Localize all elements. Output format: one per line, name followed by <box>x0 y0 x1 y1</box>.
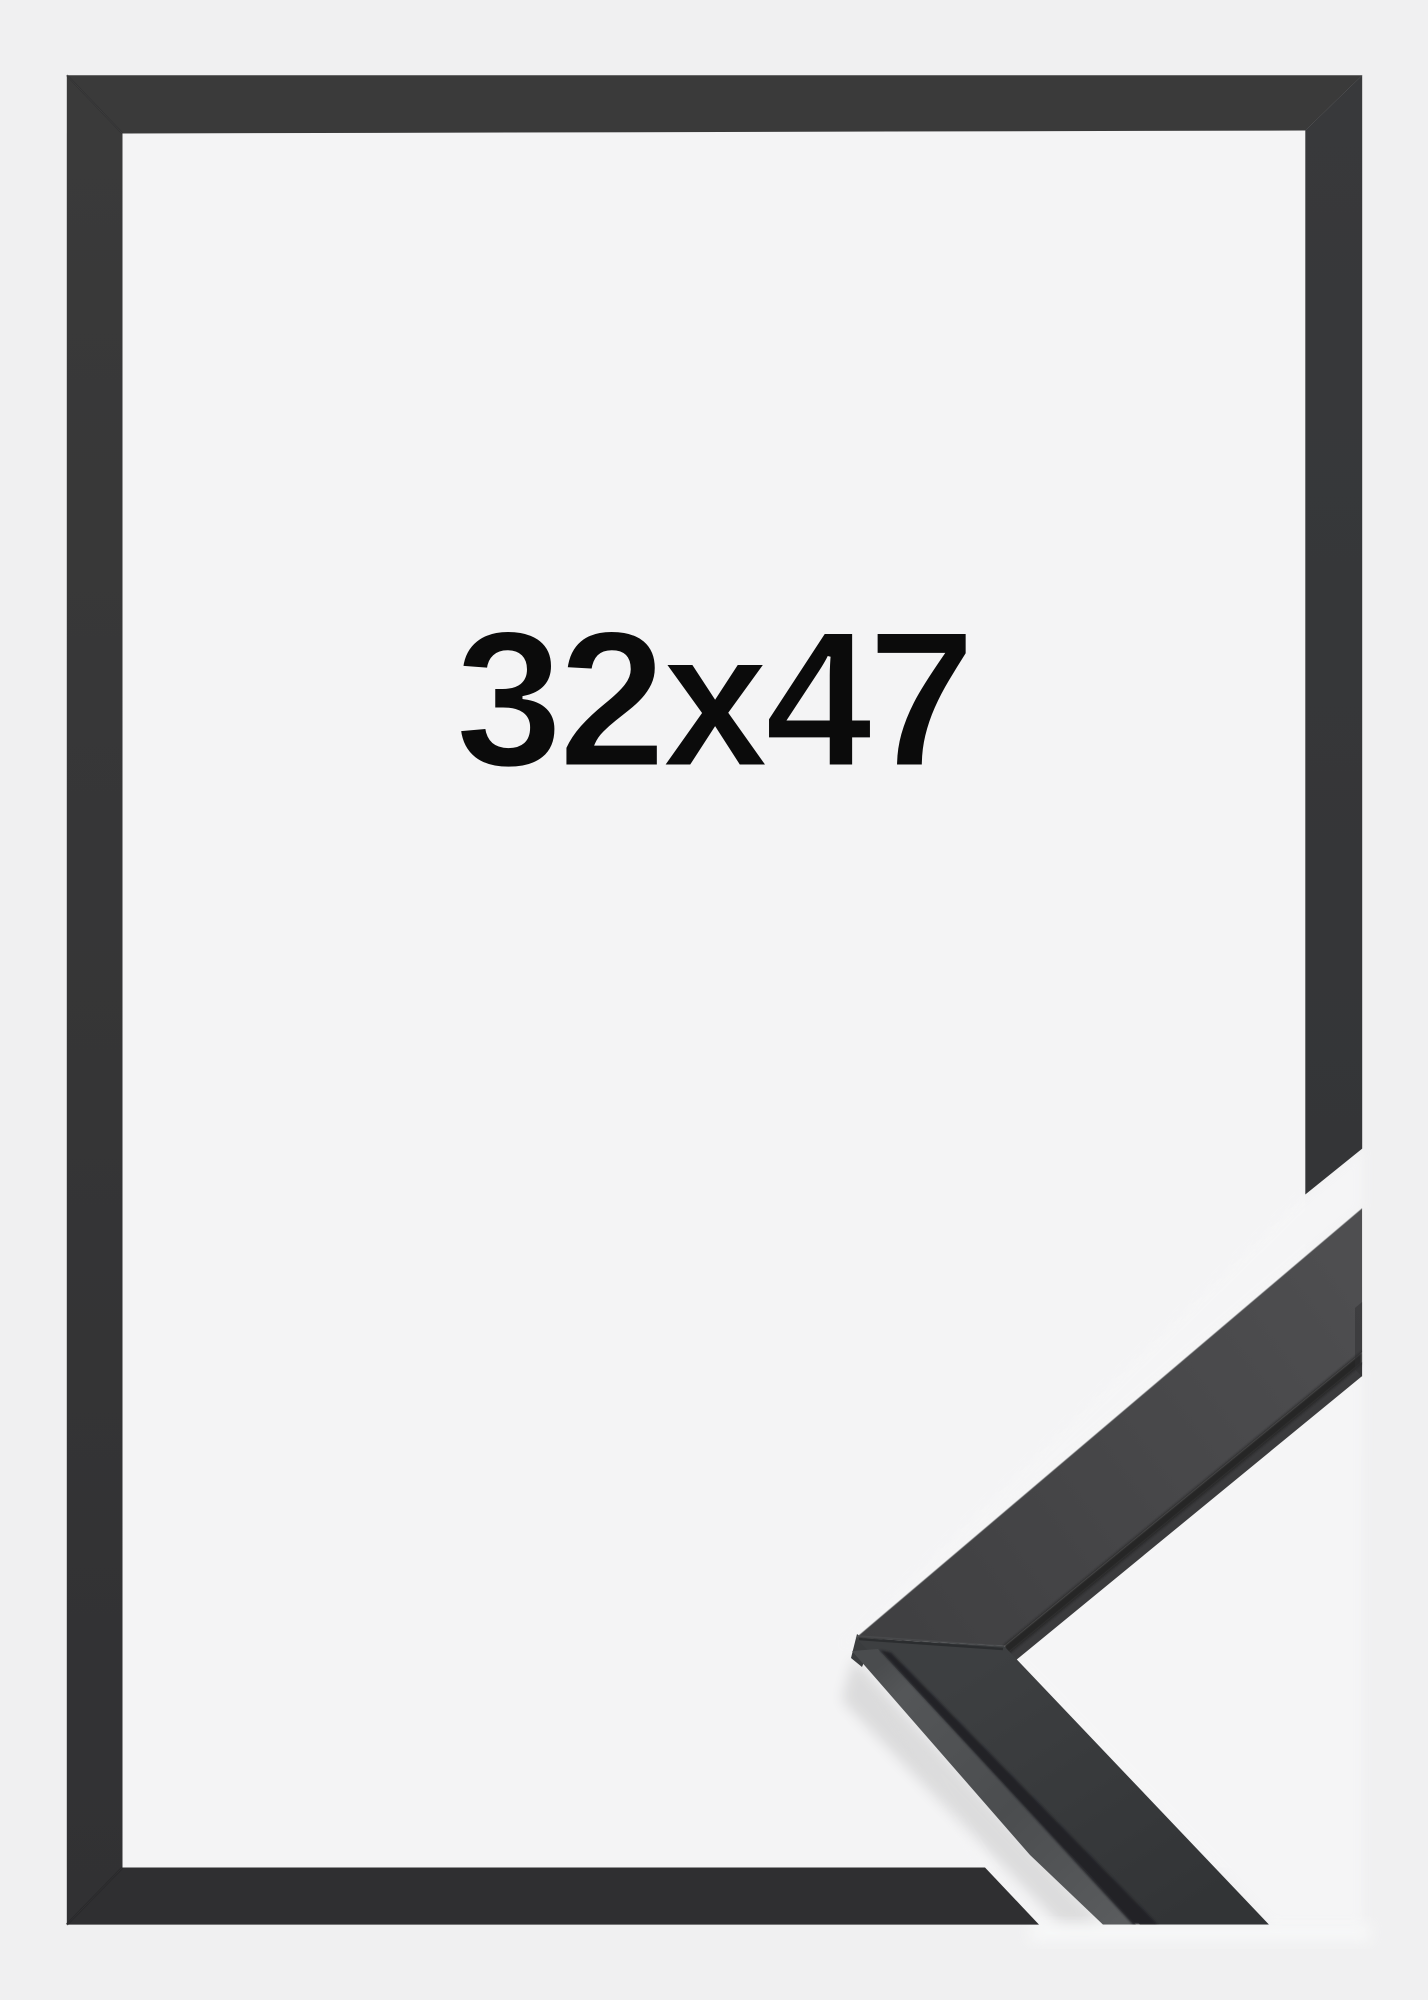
svg-text:32x47: 32x47 <box>455 591 971 808</box>
